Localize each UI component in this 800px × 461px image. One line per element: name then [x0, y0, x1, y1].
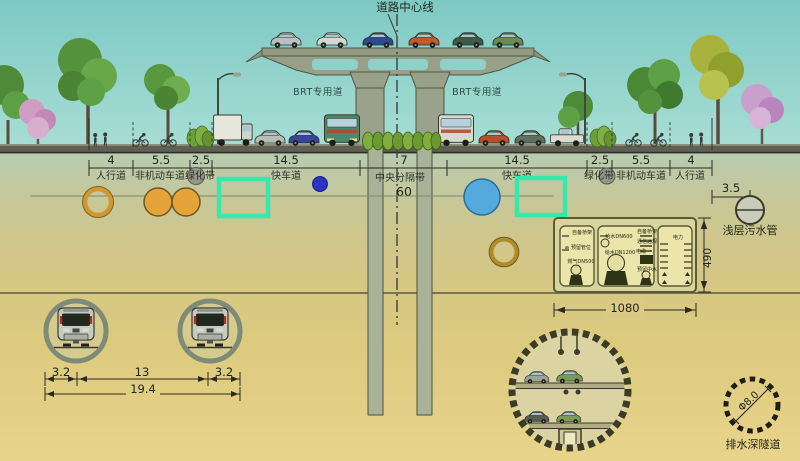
- svg-text:绿化带: 绿化带: [185, 169, 215, 182]
- blue-pipe-large: [464, 179, 500, 215]
- shallow-sewer-label: 浅层污水管: [723, 223, 778, 237]
- svg-text:给水DN600: 给水DN600: [605, 233, 632, 240]
- svg-text:4: 4: [107, 153, 114, 167]
- svg-text:19.4: 19.4: [130, 382, 156, 396]
- svg-text:3.2: 3.2: [52, 365, 70, 379]
- pier-pile-left: [368, 146, 383, 415]
- svg-text:电力: 电力: [673, 234, 683, 241]
- brt-lane-label-left: BRT专用道: [293, 86, 343, 98]
- svg-text:7: 7: [400, 153, 407, 167]
- pier-capital-left: [350, 72, 390, 88]
- svg-text:中央分隔带: 中央分隔带: [375, 171, 425, 184]
- brt-bus-icon: [439, 115, 474, 146]
- svg-text:电缆: 电缆: [636, 248, 646, 255]
- svg-text:14.5: 14.5: [273, 153, 299, 167]
- svg-text:人行道: 人行道: [675, 169, 705, 182]
- pier-pile-right: [417, 146, 432, 415]
- svg-text:13: 13: [135, 365, 150, 379]
- svg-text:非机动车道: 非机动车道: [135, 169, 185, 182]
- diagram-canvas: 道路中心线 BRT专用道 BRT专用道: [0, 0, 800, 461]
- metro-tunnel-left: [46, 301, 106, 361]
- utility-tunnel-box: 自备桥架 预留管位 燃气DN500 给水DN600 给水DN1200 自备桥架 …: [554, 218, 696, 292]
- pier-capital-right: [410, 72, 450, 88]
- svg-text:5.5: 5.5: [632, 153, 650, 167]
- svg-text:绿化带: 绿化带: [584, 169, 614, 182]
- svg-text:预留管位: 预留管位: [571, 244, 591, 251]
- brt-lane-label-right: BRT专用道: [452, 86, 502, 98]
- svg-text:预留中水: 预留中水: [637, 266, 657, 273]
- road-tunnel-section: [510, 332, 630, 449]
- orange-pipe-1: [144, 188, 172, 216]
- svg-text:自备桥架: 自备桥架: [572, 229, 592, 236]
- orange-pipe-2: [172, 188, 200, 216]
- svg-text:非机动车道: 非机动车道: [616, 169, 666, 182]
- center-line-label: 道路中心线: [376, 0, 434, 14]
- sewer-offset-value: 3.5: [722, 181, 740, 195]
- total-width-value: 60: [396, 184, 412, 199]
- svg-text:通信远规: 通信远规: [637, 238, 657, 245]
- svg-text:人行道: 人行道: [96, 169, 126, 182]
- sky-background: [0, 0, 800, 153]
- svg-text:5.5: 5.5: [152, 153, 170, 167]
- lane-width-values: 4 5.5 2.5 14.5 7 14.5 2.5 5.5 4: [107, 153, 694, 167]
- brt-bus-icon: [325, 115, 360, 146]
- svg-text:4: 4: [687, 153, 694, 167]
- road-cross-section-diagram: 道路中心线 BRT专用道 BRT专用道: [0, 0, 800, 461]
- shallow-sewer-pipe-icon: [736, 196, 764, 224]
- svg-text:2.5: 2.5: [192, 153, 210, 167]
- svg-text:14.5: 14.5: [504, 153, 530, 167]
- svg-text:2.5: 2.5: [591, 153, 609, 167]
- svg-text:自备桥架: 自备桥架: [637, 228, 657, 235]
- svg-text:3.2: 3.2: [215, 365, 233, 379]
- svg-text:1080: 1080: [610, 301, 639, 315]
- metro-tunnel-right: [180, 301, 240, 361]
- svg-text:快车道: 快车道: [271, 169, 301, 182]
- svg-text:燃气DN500: 燃气DN500: [567, 258, 594, 265]
- deep-tunnel-label: 排水深隧道: [726, 437, 781, 451]
- svg-text:给水DN1200: 给水DN1200: [605, 249, 635, 256]
- svg-text:490: 490: [702, 248, 714, 268]
- viaduct-deck: [262, 48, 534, 56]
- blue-valve-dot: [313, 177, 328, 192]
- median-shrubs: [363, 132, 442, 150]
